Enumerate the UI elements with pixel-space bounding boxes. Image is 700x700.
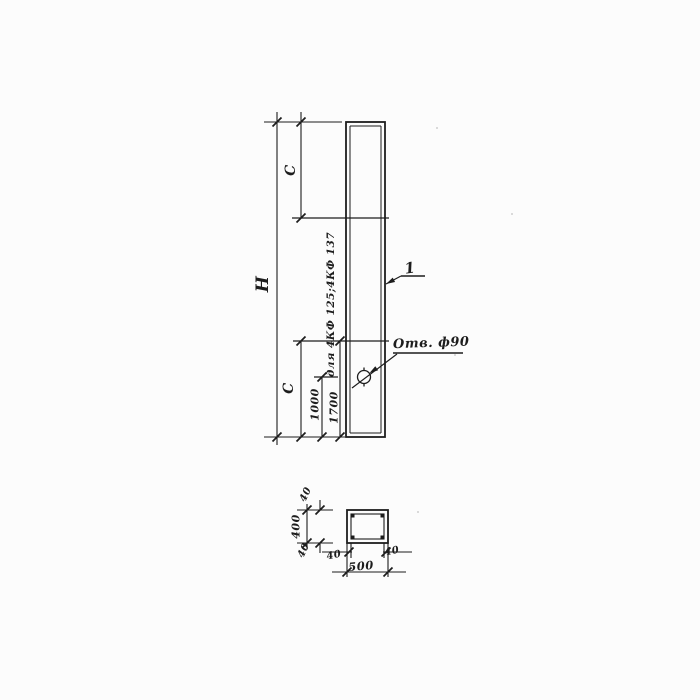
hole-circle [358, 368, 371, 387]
drawing-linework [0, 0, 700, 700]
hole-callout-label: Отв. ф90 [393, 335, 463, 352]
hole-leader-line [352, 353, 463, 388]
section-height-label: 400 [290, 509, 303, 545]
dim-label-c-top: С [283, 160, 299, 180]
section-rebar-dots [351, 514, 385, 540]
dim-label-1000: 1000 [309, 385, 322, 425]
dim-label-overall-height: Н [253, 271, 273, 297]
drawing-sheet: Н С С 1000 1700 для 4КФ 125;4КФ 137 Отв.… [0, 0, 700, 700]
position-mark-label: 1 [401, 258, 419, 278]
dim-label-1700: 1700 [328, 388, 341, 428]
scan-specks [417, 127, 513, 513]
section-width-label: 500 [345, 558, 376, 575]
note-for-types: для 4КФ 125;4КФ 137 [325, 247, 337, 377]
dim-label-c-bottom: С [281, 378, 297, 398]
